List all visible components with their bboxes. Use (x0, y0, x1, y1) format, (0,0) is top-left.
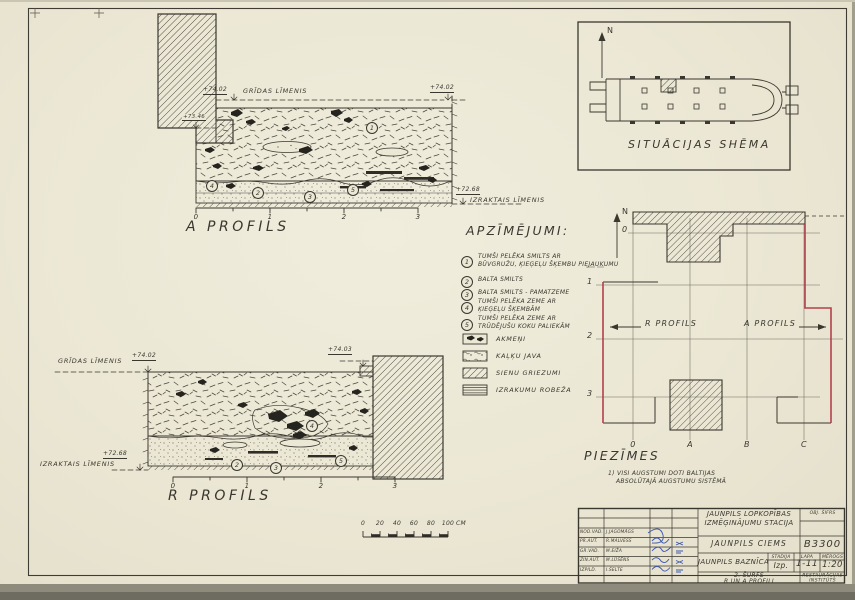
scalebar-100: 100 (442, 521, 454, 528)
legend-item-1-line2: BŪVGRUŽU, ĶIEĢEĻU ŠĶEMBU PIEJAUKUMU (478, 262, 619, 269)
profile-r-soil-layer (148, 372, 373, 436)
legend-symbol-walls-label: SIENU GRIEZUMI (496, 370, 561, 377)
layer-number-3: 3 (304, 191, 316, 203)
profile-a-excavated-elevation: +72.68 (456, 187, 480, 195)
profile-a-ruler-3: 3 (416, 214, 421, 222)
titleblock-staff-role-4: IZPILD. (580, 568, 596, 573)
scalebar-80: 80 (427, 521, 435, 528)
legend-item-4-line1: TUMŠI PELĒKA ZEME AR (478, 299, 556, 306)
profile-a-ruler-2: 2 (342, 214, 347, 222)
titleblock-scale-value: 1:20 (820, 561, 845, 570)
legend-item-5-line2: TRŪDĒJUŠU KOKU PALIEKĀM (478, 324, 570, 331)
titleblock-object-code: B3300 (800, 539, 845, 550)
plan-r-profile-label: R PROFILS (645, 320, 697, 329)
titleblock-org-line2: INSTITŪTS (800, 578, 845, 583)
titleblock-stage-header: STADIJA (768, 555, 794, 560)
legend-item-1-line1: TUMŠI PELĒKA SMILTS AR (478, 254, 561, 261)
titleblock-stage-value: Izp. (768, 562, 794, 570)
profile-r-wall-section (373, 356, 443, 479)
titleblock-project-line2: IZMĒĢINĀJUMU STACIJA (698, 520, 800, 528)
legend-symbol-boundary-label: IZRAKUMU ROBEŽA (496, 387, 571, 394)
situation-title: SITUĀCIJAS SHĒMA (628, 139, 771, 151)
layer-number-2: 2 (231, 459, 243, 471)
symbol-excavation-boundary (463, 385, 487, 395)
excavation-location-marker (661, 79, 676, 92)
plan-pillar-hatched (670, 380, 722, 430)
titleblock-staff-name-2: M.EIŽA (606, 549, 622, 554)
plan-col-a: A (687, 441, 693, 450)
plan-a-profile-label: A PROFILS (744, 320, 796, 329)
church-plan-outline (590, 79, 798, 121)
titleblock-staff-role-2: GR.VAD. (580, 549, 599, 554)
titleblock-project-line1: JAUNPILS LOPKOPĪBAS (698, 511, 800, 519)
church-buttresses (630, 76, 735, 124)
scalebar-0: 0 (361, 521, 365, 528)
legend-item-5-line1: TUMŠI PELĒKA ZEME AR (478, 316, 556, 323)
scale-bar (363, 531, 448, 537)
symbol-lime-mortar (463, 351, 487, 361)
profile-a-title: A PROFILS (186, 220, 290, 235)
plan-row-0: 0 (622, 226, 628, 235)
profile-r-excavated-label: IZRAKTAIS LĪMENIS (40, 461, 115, 468)
plan-row-3: 3 (587, 390, 593, 399)
legend-item-5-number: 5 (461, 319, 473, 331)
profile-a-right-elevation: +74.02 (430, 85, 454, 93)
scalebar-40: 40 (393, 521, 401, 528)
scanned-drawing-sheet: +74.02 GRĪDAS LĪMENIS +73.46 +74.02 +72.… (0, 0, 855, 600)
layer-number-5: 5 (347, 184, 359, 196)
legend-symbol-mortar-label: KAĻĶU JAVA (496, 353, 542, 360)
titleblock-staff-name-3: M.LŪSĒNS (606, 558, 629, 563)
titleblock-staff-name-0: J.JAGOMĀGS (606, 530, 634, 535)
plan-wall-hatched (633, 212, 805, 262)
plan-col-c: C (801, 441, 807, 450)
profile-r-ruler-2: 2 (319, 483, 324, 491)
situation-north-label: N (607, 27, 613, 36)
sheet-frame (29, 9, 847, 576)
plan-north-arrow (614, 213, 621, 222)
titleblock-village: JAUNPILS CIEMS (698, 540, 800, 548)
titleblock-staff-role-0: NOD.VAD. (580, 530, 603, 535)
profile-a-floor-elevation: +74.02 (203, 87, 227, 95)
profile-a-excavated-label: IZRAKTAIS LĪMENIS (470, 197, 545, 204)
layer-number-2: 2 (252, 187, 264, 199)
plan-col-b: B (744, 441, 750, 450)
titleblock-sheet-value: 1-11 (794, 560, 820, 570)
layer-number-4: 4 (306, 420, 318, 432)
layer-number-5: 5 (335, 455, 347, 467)
legend-item-4-line2: ĶIEĢEĻU ŠĶEMBĀM (478, 307, 540, 314)
legend-item-2-line1: BALTA SMILTS (478, 277, 523, 284)
legend-symbol-boxes (463, 334, 487, 395)
plan-view (586, 212, 847, 440)
legend-item-3-number: 3 (461, 289, 473, 301)
plan-row-1: 1 (587, 278, 593, 287)
legend-symbol-stones-label: AKMEŅI (496, 336, 526, 343)
titleblock-staff-role-3: ZIN.AUT. (580, 558, 600, 563)
titleblock-staff-role-1: PR.AUT. (580, 539, 598, 544)
notes-line-2: ABSOLŪTAJĀ AUGSTUMU SISTĒMĀ (616, 479, 726, 486)
titleblock-staff-name-1: R.MALVESS (606, 539, 632, 544)
profile-r-floor-elevation: +74.02 (132, 353, 156, 361)
profile-r-right-elevation: +74.03 (328, 347, 352, 355)
scalebar-20: 20 (376, 521, 384, 528)
legend-item-2-number: 2 (461, 276, 473, 288)
profile-a-ledge-elevation: +73.46 (182, 114, 206, 121)
registration-marks (30, 8, 104, 18)
profile-a-floor-label: GRĪDAS LĪMENIS (243, 88, 307, 95)
legend-item-4-number: 4 (461, 302, 473, 314)
profile-a-bottom-limit (196, 203, 452, 207)
notes-line-1: 1) VISI AUGSTUMI DOTI BALTIJAS (608, 471, 715, 478)
layer-number-1: 1 (366, 122, 378, 134)
profile-a-wall-section (158, 14, 233, 143)
notes-title: PIEZĪMES (584, 449, 660, 463)
profile-r-ruler (173, 477, 395, 482)
titleblock-object-code-label: OBJ. ŠIFRS (800, 511, 845, 516)
titleblock-drawing-line2: R UN A PROFILI (698, 579, 800, 586)
legend-title: APZĪMĒJUMI: (466, 224, 569, 238)
handwritten-signatures (648, 529, 683, 572)
profile-a-sand-layer (196, 181, 452, 203)
titleblock-staff-name-4: I.ŠELTE (606, 568, 623, 573)
profile-r-floor-label: GRĪDAS LĪMENIS (58, 358, 122, 365)
titleblock-scale-header: MĒROGS (820, 555, 845, 560)
scalebar-60: 60 (410, 521, 418, 528)
layer-number-3: 3 (270, 462, 282, 474)
situation-north-arrow (599, 32, 606, 41)
scalebar-unit: CM (456, 521, 466, 528)
legend-item-1-number: 1 (461, 256, 473, 268)
symbol-wall-sections (463, 368, 487, 378)
plan-north-label: N (622, 208, 628, 217)
profile-r-title: R PROFILS (168, 489, 272, 504)
profile-r-ruler-3: 3 (393, 483, 398, 491)
profile-a-ruler (196, 208, 418, 213)
profile-r-excavated-elevation: +72.68 (103, 451, 127, 459)
layer-number-4: 4 (206, 180, 218, 192)
legend-item-3-line1: BALTA SMILTS - PAMATZEME (478, 290, 569, 297)
church-pillars (642, 88, 725, 109)
titleblock-building: JAUNPILS BAZNĪCA (698, 559, 768, 567)
plan-row-2: 2 (587, 332, 593, 341)
profile-a-soil-layer (196, 108, 452, 181)
